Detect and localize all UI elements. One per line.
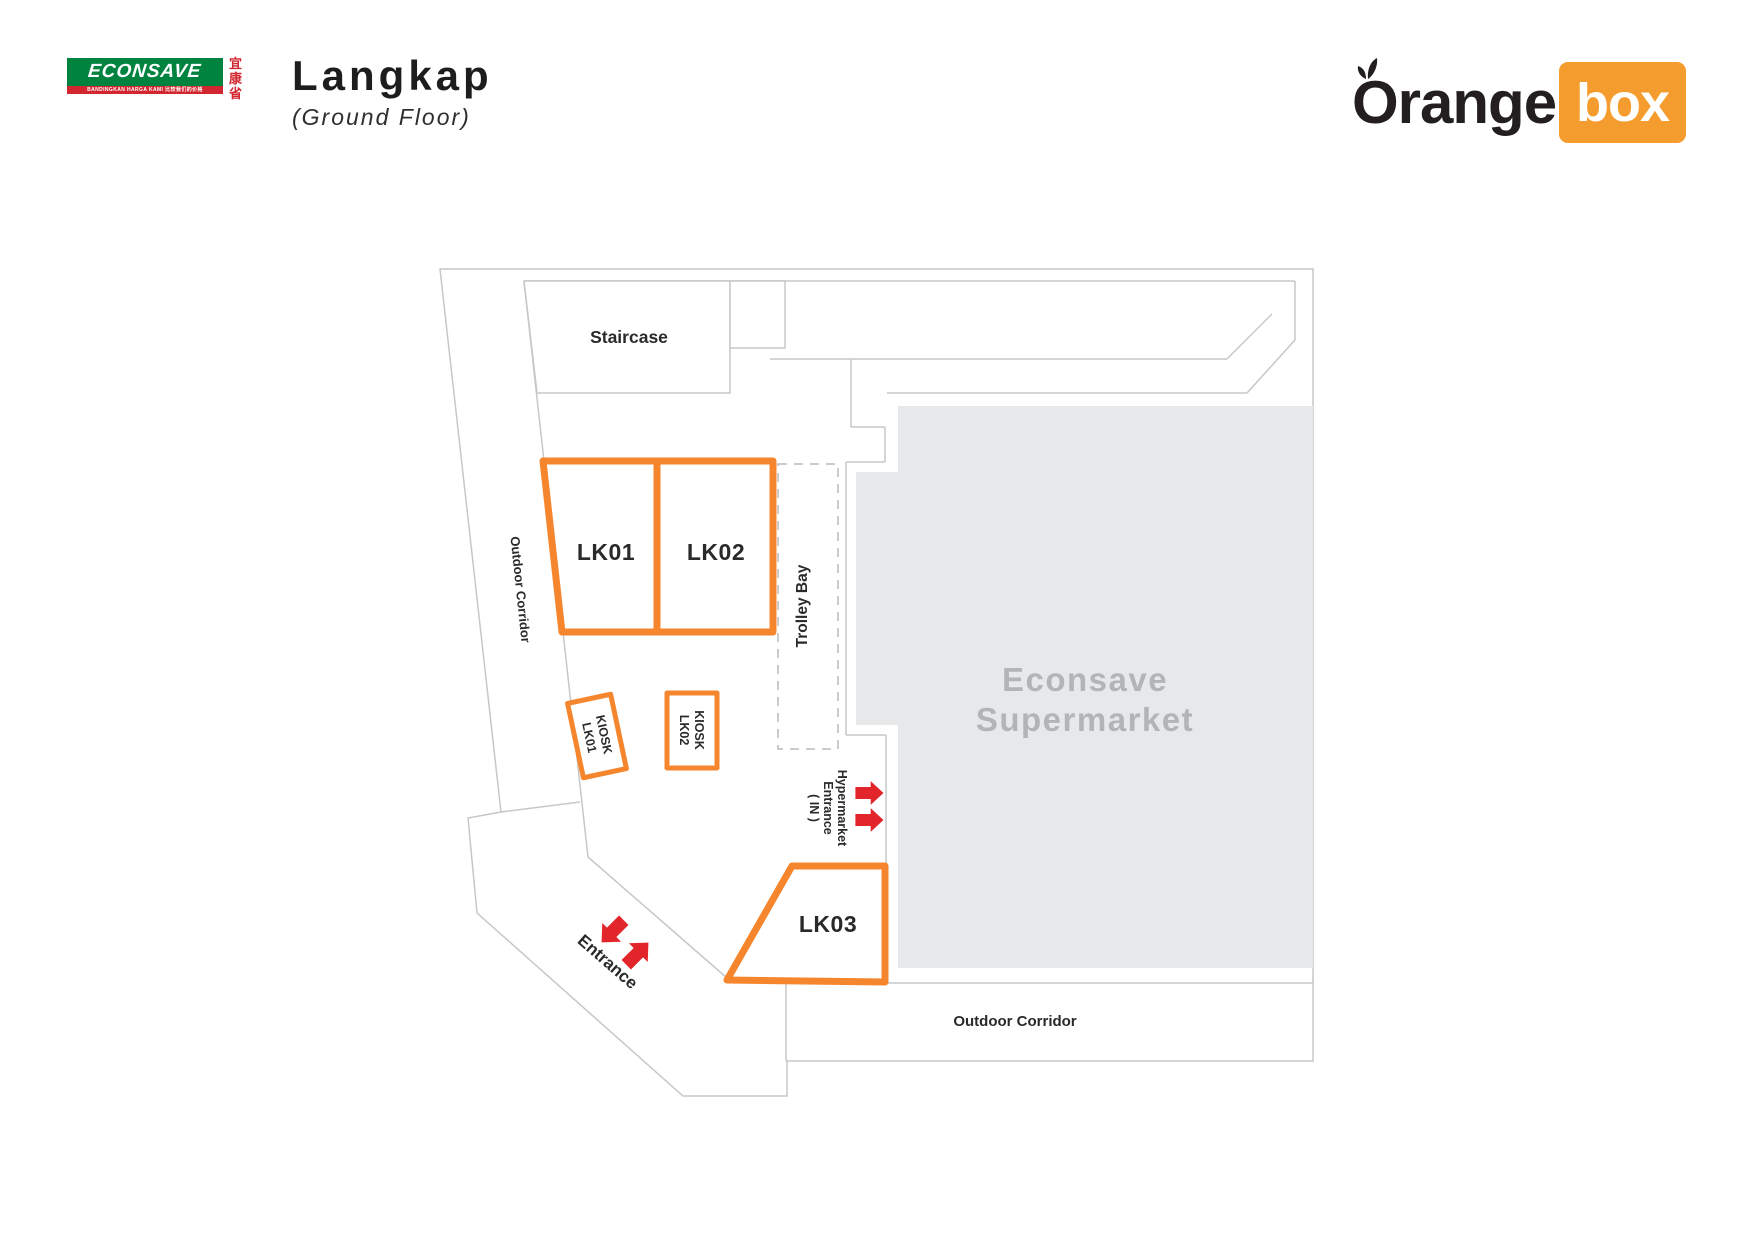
utility-room <box>730 281 785 348</box>
hypermarket-entrance-label: Hypermarket Entrance ( IN ) <box>807 770 849 847</box>
svg-text:Econsave: Econsave <box>1002 661 1168 698</box>
right-arrow-icon <box>855 781 883 805</box>
floorplan-svg: Staircase Trolley Bay LK01 LK02 KIOSK LK… <box>0 0 1754 1241</box>
svg-text:Supermarket: Supermarket <box>976 701 1194 738</box>
svg-text:Entrance: Entrance <box>821 781 835 835</box>
page-root: ECONSAVE BANDINGKAN HARGA KAMI 比较我们的价格 宜… <box>0 0 1754 1241</box>
kiosk-lk01: KIOSK LK01 <box>568 694 627 777</box>
svg-text:Hypermarket: Hypermarket <box>835 770 849 847</box>
outdoor-corridor-bottom-label: Outdoor Corridor <box>953 1013 1076 1030</box>
svg-text:( IN ): ( IN ) <box>807 794 821 822</box>
kiosk-lk02-label-line1: KIOSK <box>692 710 706 750</box>
staircase-label: Staircase <box>590 327 668 347</box>
kiosk-lk02-label-line2: LK02 <box>677 715 691 746</box>
trolley-bay-label: Trolley Bay <box>794 564 811 647</box>
unit-lk03-label: LK03 <box>799 911 857 937</box>
unit-lk02-label: LK02 <box>687 539 745 565</box>
right-arrow-icon <box>855 808 883 832</box>
outdoor-corridor-left-label: Outdoor Corridor <box>507 536 533 644</box>
kiosk-lk02: KIOSK LK02 <box>667 693 717 768</box>
unit-lk01-label: LK01 <box>577 539 635 565</box>
